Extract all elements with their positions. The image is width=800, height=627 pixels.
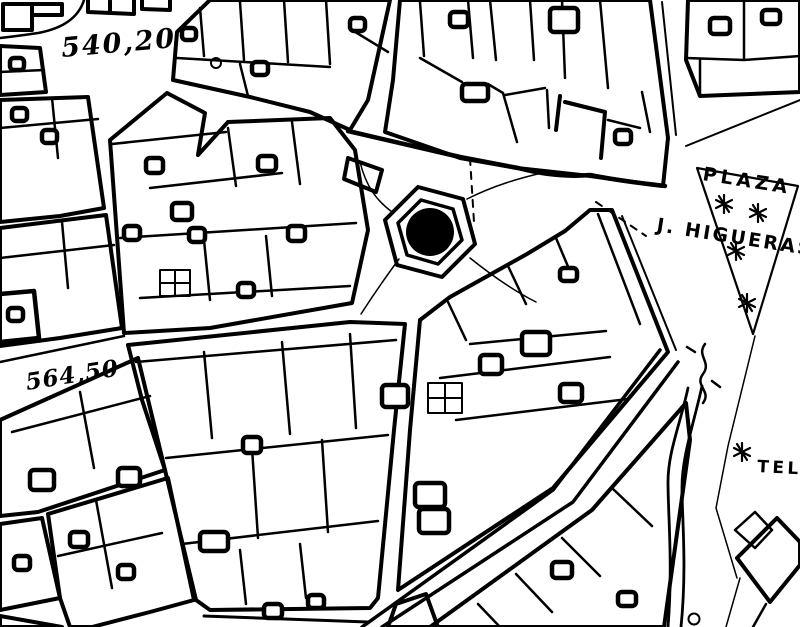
- street-label-tel: TEL: [757, 457, 800, 479]
- cadastral-map: 540,20 564,50: [0, 0, 800, 627]
- elevation-label-topleft: 540,20: [60, 23, 178, 64]
- tree-icon: [734, 443, 750, 461]
- tree-icons: [687, 195, 766, 625]
- building-outlines: [0, 0, 800, 627]
- map-viewport: 540,20 564,50: [0, 0, 800, 627]
- fountain-icon: [385, 187, 475, 277]
- small-circle-marker: [689, 614, 700, 625]
- plaza-label-line1: PLAZA: [701, 163, 793, 199]
- tree-squiggle-icon: [687, 344, 720, 403]
- tree-icon: [716, 195, 732, 213]
- curved-street-lines: [668, 386, 702, 627]
- tree-icon: [750, 204, 766, 222]
